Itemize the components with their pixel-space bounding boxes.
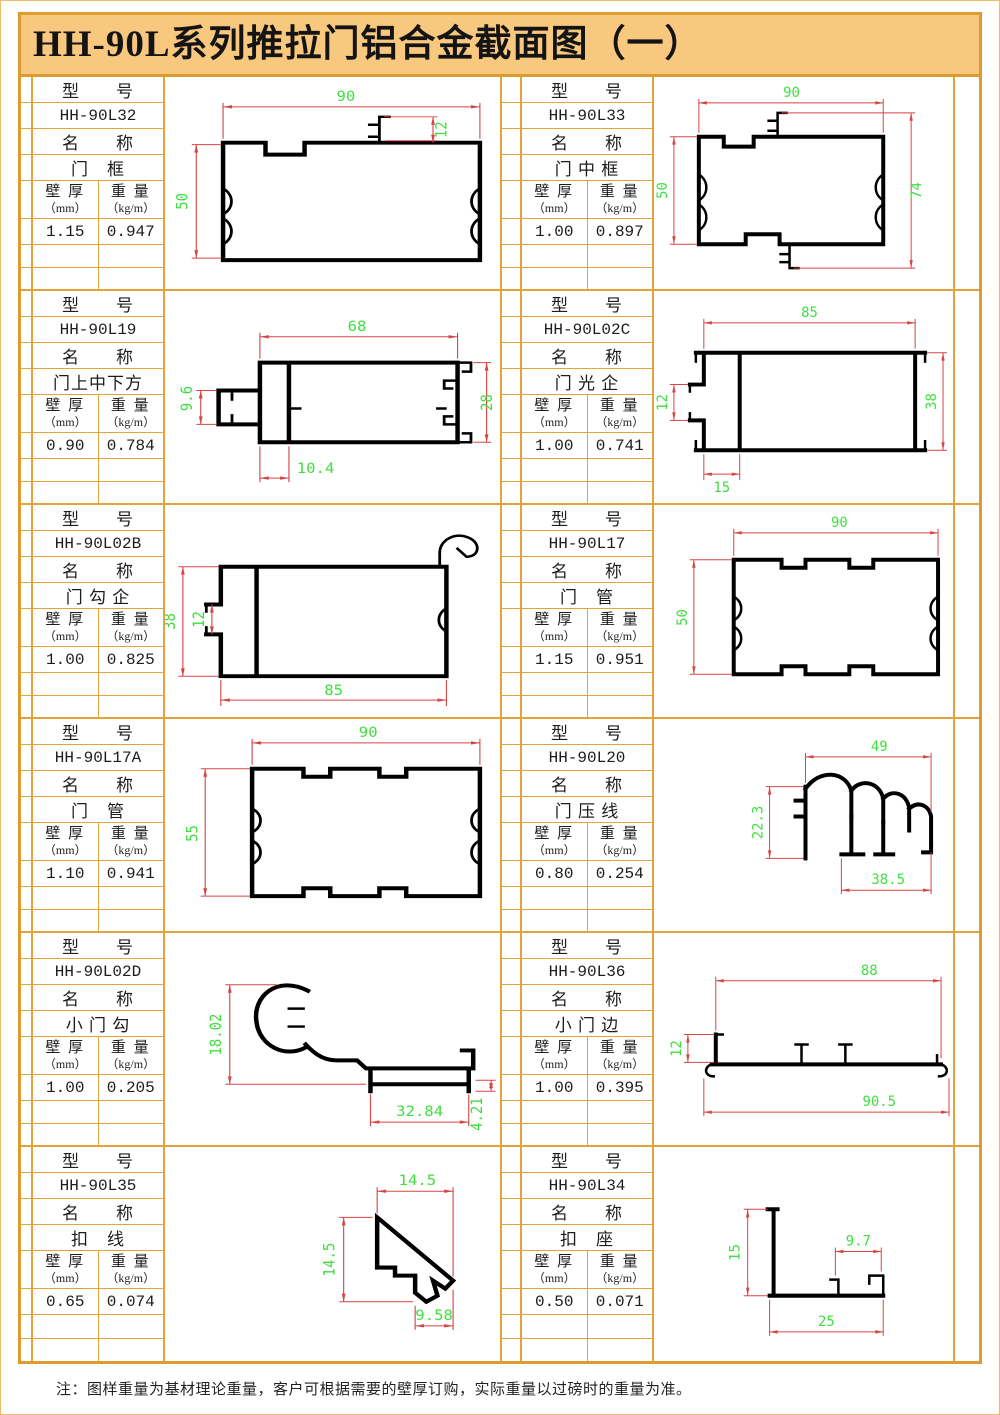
thickness-header: 壁 厚（mm） (522, 1037, 587, 1074)
panel-gutter (21, 719, 33, 931)
panel-gutter (21, 77, 33, 289)
profile-panel: 型 号 HH-90L17A 名 称 门 管 壁 厚（mm） 重 量（kg/m） … (21, 719, 500, 933)
dim-text: 28 (478, 394, 496, 411)
thickness-value: 1.00 (33, 1075, 98, 1100)
thickness-value: 0.80 (522, 861, 587, 886)
spec-header: 壁 厚（mm） 重 量（kg/m） (522, 395, 652, 433)
right-gutter (953, 77, 979, 289)
name-value: 小 门 边 (522, 1011, 652, 1037)
drawing-area: 90 50 74 (654, 77, 953, 289)
profile-drawing: 49 22.3 38.5 (654, 719, 953, 931)
dim-text: 38 (924, 393, 940, 410)
empty-row (33, 1101, 163, 1124)
thickness-header: 壁 厚（mm） (522, 395, 587, 432)
profile-drawing: 18.02 32.84 4.21 (165, 933, 500, 1145)
weight-header: 重 量（kg/m） (98, 609, 164, 646)
dim-text: 68 (348, 319, 367, 335)
model-label: 型 号 (522, 291, 652, 317)
panel-gutter (502, 505, 522, 717)
thickness-value: 1.00 (522, 219, 587, 244)
empty-row (522, 910, 652, 932)
thickness-value: 1.10 (33, 861, 98, 886)
dimensions: 90 12 50 (174, 89, 480, 258)
profile-panel: 型 号 HH-90L35 名 称 扣 线 壁 厚（mm） 重 量（kg/m） 0… (21, 1147, 500, 1361)
dim-text: 50 (655, 182, 671, 199)
profile-outline (699, 113, 883, 268)
spec-values: 1.00 0.205 (33, 1075, 163, 1101)
name-value: 扣 座 (522, 1225, 652, 1251)
profile-drawing: 88 12 90.5 (654, 933, 953, 1145)
dim-text: 88 (861, 963, 878, 979)
empty-row (522, 459, 652, 482)
weight-header: 重 量（kg/m） (98, 1037, 164, 1074)
weight-header: 重 量（kg/m） (587, 395, 653, 432)
dim-text: 90 (831, 515, 848, 531)
dim-text: 25 (818, 1314, 835, 1330)
empty-row (522, 1315, 652, 1339)
name-label: 名 称 (522, 985, 652, 1011)
spec-header: 壁 厚（mm） 重 量（kg/m） (522, 609, 652, 647)
panel-gutter (21, 291, 33, 503)
spec-values: 0.50 0.071 (522, 1289, 652, 1315)
dimensions: 90 50 (675, 515, 938, 674)
profile-drawing: 90 12 50 (165, 77, 500, 289)
empty-row (522, 268, 652, 290)
dim-text: 9.6 (178, 386, 196, 411)
panel-gutter (21, 1147, 33, 1361)
spec-header: 壁 厚（mm） 重 量（kg/m） (33, 181, 163, 219)
thickness-value: 0.50 (522, 1289, 587, 1314)
thickness-header: 壁 厚（mm） (33, 823, 98, 860)
main-frame: HH-90L系列推拉门铝合金截面图（一） 型 号 HH-90L32 名 称 门 … (18, 12, 982, 1364)
weight-header: 重 量（kg/m） (98, 395, 164, 432)
thickness-header: 壁 厚（mm） (33, 395, 98, 432)
dim-text: 85 (801, 305, 818, 321)
name-label: 名 称 (33, 343, 163, 369)
drawing-area: 38 12 85 (165, 505, 500, 717)
thickness-header: 壁 厚（mm） (33, 1251, 98, 1288)
weight-header: 重 量（kg/m） (98, 181, 164, 218)
thickness-header: 壁 厚（mm） (522, 181, 587, 218)
dim-text: 22.3 (751, 806, 767, 840)
profile-panel: 型 号 HH-90L19 名 称 门上中下方 壁 厚（mm） 重 量（kg/m）… (21, 291, 500, 505)
profile-outline (219, 363, 471, 443)
profile-panel: 型 号 HH-90L33 名 称 门 中 框 壁 厚（mm） 重 量（kg/m）… (500, 77, 979, 291)
dim-text: 90 (783, 85, 800, 101)
dim-text: 38 (165, 613, 179, 630)
dimensions: 15 9.7 25 (728, 1209, 883, 1336)
empty-row (33, 1315, 163, 1339)
dimensions: 14.5 14.5 9.58 (320, 1172, 453, 1330)
name-value: 门 中 框 (522, 155, 652, 181)
dim-text: 90.5 (862, 1094, 896, 1110)
right-gutter (953, 1147, 979, 1361)
name-label: 名 称 (522, 129, 652, 155)
panel-gutter (502, 291, 522, 503)
empty-row (522, 482, 652, 504)
profile-drawing: 15 9.7 25 (654, 1147, 953, 1361)
model-value: HH-90L17A (33, 745, 163, 771)
panel-gutter (502, 719, 522, 931)
dim-text: 38.5 (871, 872, 905, 888)
dim-text: 12 (655, 394, 671, 411)
profile-drawing: 38 12 85 (165, 505, 500, 717)
panel-gutter (21, 933, 33, 1145)
name-value: 门 管 (33, 797, 163, 823)
profile-drawing: 68 9.6 28 10.4 (165, 291, 500, 503)
profile-outline (377, 1217, 453, 1301)
model-label: 型 号 (522, 1147, 652, 1173)
weight-value: 0.395 (587, 1075, 653, 1100)
thickness-value: 0.65 (33, 1289, 98, 1314)
footnote: 注：图样重量为基材理论重量，客户可根据需要的壁厚订购，实际重量以过磅时的重量为准… (56, 1378, 982, 1399)
drawing-area: 49 22.3 38.5 (654, 719, 953, 931)
profile-panel: 型 号 HH-90L36 名 称 小 门 边 壁 厚（mm） 重 量（kg/m）… (500, 933, 979, 1147)
right-gutter (953, 505, 979, 717)
thickness-value: 0.90 (33, 433, 98, 458)
dimensions: 88 12 90.5 (669, 963, 949, 1116)
weight-header: 重 量（kg/m） (587, 1037, 653, 1074)
drawing-area: 14.5 14.5 9.58 (165, 1147, 500, 1361)
profile-outline (223, 117, 480, 260)
empty-row (522, 245, 652, 268)
panel-gutter (502, 1147, 522, 1361)
empty-row (33, 268, 163, 290)
weight-header: 重 量（kg/m） (587, 609, 653, 646)
name-label: 名 称 (33, 985, 163, 1011)
name-value: 门 管 (522, 583, 652, 609)
spec-table: 型 号 HH-90L35 名 称 扣 线 壁 厚（mm） 重 量（kg/m） 0… (33, 1147, 165, 1361)
weight-value: 0.784 (98, 433, 164, 458)
model-label: 型 号 (33, 291, 163, 317)
dim-text: 18.02 (207, 1014, 225, 1056)
spec-header: 壁 厚（mm） 重 量（kg/m） (33, 1037, 163, 1075)
model-value: HH-90L20 (522, 745, 652, 771)
dim-text: 32.84 (396, 1104, 443, 1120)
thickness-header: 壁 厚（mm） (522, 1251, 587, 1288)
name-value: 小 门 勾 (33, 1011, 163, 1037)
name-label: 名 称 (33, 557, 163, 583)
model-label: 型 号 (33, 77, 163, 103)
profile-outline (796, 775, 932, 859)
weight-header: 重 量（kg/m） (98, 823, 164, 860)
empty-row (33, 245, 163, 268)
spec-values: 1.00 0.741 (522, 433, 652, 459)
dim-text: 12 (669, 1040, 685, 1057)
profile-panel: 型 号 HH-90L02D 名 称 小 门 勾 壁 厚（mm） 重 量（kg/m… (21, 933, 500, 1147)
spec-header: 壁 厚（mm） 重 量（kg/m） (522, 1037, 652, 1075)
weight-value: 0.951 (587, 647, 653, 672)
empty-row (522, 673, 652, 696)
weight-header: 重 量（kg/m） (587, 823, 653, 860)
weight-value: 0.897 (587, 219, 653, 244)
empty-row (33, 459, 163, 482)
profile-outline (256, 985, 473, 1091)
dim-text: 55 (184, 825, 202, 842)
right-gutter (953, 291, 979, 503)
name-label: 名 称 (522, 557, 652, 583)
profile-drawing: 85 12 38 15 (654, 291, 953, 503)
spec-table: 型 号 HH-90L32 名 称 门 框 壁 厚（mm） 重 量（kg/m） 1… (33, 77, 165, 289)
spec-table: 型 号 HH-90L02D 名 称 小 门 勾 壁 厚（mm） 重 量（kg/m… (33, 933, 165, 1145)
name-label: 名 称 (33, 771, 163, 797)
spec-table: 型 号 HH-90L02C 名 称 门 光 企 壁 厚（mm） 重 量（kg/m… (522, 291, 654, 503)
profile-drawing: 14.5 14.5 9.58 (165, 1147, 500, 1361)
spec-table: 型 号 HH-90L17 名 称 门 管 壁 厚（mm） 重 量（kg/m） 1… (522, 505, 654, 717)
spec-values: 0.80 0.254 (522, 861, 652, 887)
drawing-area: 18.02 32.84 4.21 (165, 933, 500, 1145)
empty-row (33, 910, 163, 932)
model-value: HH-90L34 (522, 1173, 652, 1199)
model-label: 型 号 (33, 1147, 163, 1173)
spec-table: 型 号 HH-90L19 名 称 门上中下方 壁 厚（mm） 重 量（kg/m）… (33, 291, 165, 503)
model-label: 型 号 (522, 77, 652, 103)
dim-text: 90 (336, 89, 355, 105)
name-label: 名 称 (33, 129, 163, 155)
model-label: 型 号 (522, 505, 652, 531)
spec-header: 壁 厚（mm） 重 量（kg/m） (33, 609, 163, 647)
panel-gutter (502, 77, 522, 289)
thickness-header: 壁 厚（mm） (33, 609, 98, 646)
dimensions: 90 55 (184, 725, 480, 896)
profile-drawing: 90 50 (654, 505, 953, 717)
empty-row (33, 482, 163, 504)
empty-row (33, 696, 163, 718)
empty-row (522, 1101, 652, 1124)
model-label: 型 号 (522, 933, 652, 959)
dimensions: 49 22.3 38.5 (751, 739, 931, 894)
profile-outline (252, 769, 480, 896)
dim-text: 15 (728, 1244, 744, 1261)
weight-value: 0.205 (98, 1075, 164, 1100)
model-value: HH-90L33 (522, 103, 652, 129)
spec-table: 型 号 HH-90L36 名 称 小 门 边 壁 厚（mm） 重 量（kg/m）… (522, 933, 654, 1145)
dimensions: 85 12 38 15 (655, 305, 947, 496)
thickness-header: 壁 厚（mm） (522, 823, 587, 860)
profile-grid: 型 号 HH-90L32 名 称 门 框 壁 厚（mm） 重 量（kg/m） 1… (21, 77, 979, 1361)
dim-text: 85 (324, 683, 343, 699)
empty-row (522, 1339, 652, 1362)
spec-header: 壁 厚（mm） 重 量（kg/m） (33, 395, 163, 433)
name-label: 名 称 (522, 343, 652, 369)
empty-row (522, 1124, 652, 1146)
dim-text: 14.5 (320, 1243, 339, 1277)
right-gutter (953, 933, 979, 1145)
dim-text: 9.58 (415, 1307, 453, 1324)
name-value: 门 框 (33, 155, 163, 181)
panel-gutter (502, 933, 522, 1145)
weight-header: 重 量（kg/m） (587, 181, 653, 218)
spec-values: 1.10 0.941 (33, 861, 163, 887)
drawing-area: 90 55 (165, 719, 500, 931)
model-label: 型 号 (33, 505, 163, 531)
profile-outline (206, 536, 477, 677)
thickness-header: 壁 厚（mm） (522, 609, 587, 646)
spec-values: 1.15 0.947 (33, 219, 163, 245)
spec-header: 壁 厚（mm） 重 量（kg/m） (522, 823, 652, 861)
spec-values: 1.15 0.951 (522, 647, 652, 673)
model-value: HH-90L35 (33, 1173, 163, 1199)
weight-value: 0.825 (98, 647, 164, 672)
model-label: 型 号 (33, 719, 163, 745)
name-value: 门上中下方 (33, 369, 163, 395)
drawing-area: 88 12 90.5 (654, 933, 953, 1145)
thickness-value: 1.15 (522, 647, 587, 672)
dim-text: 10.4 (297, 461, 335, 477)
dim-text: 12 (190, 611, 208, 628)
name-value: 门 压 线 (522, 797, 652, 823)
empty-row (522, 696, 652, 718)
model-value: HH-90L36 (522, 959, 652, 985)
profile-panel: 型 号 HH-90L02C 名 称 门 光 企 壁 厚（mm） 重 量（kg/m… (500, 291, 979, 505)
thickness-header: 壁 厚（mm） (33, 1037, 98, 1074)
profile-outline (734, 560, 938, 674)
profile-panel: 型 号 HH-90L02B 名 称 门 勾 企 壁 厚（mm） 重 量（kg/m… (21, 505, 500, 719)
empty-row (522, 887, 652, 910)
model-value: HH-90L02D (33, 959, 163, 985)
spec-table: 型 号 HH-90L17A 名 称 门 管 壁 厚（mm） 重 量（kg/m） … (33, 719, 165, 931)
dimensions: 18.02 32.84 4.21 (207, 985, 495, 1131)
thickness-value: 1.00 (522, 433, 587, 458)
page-title: HH-90L系列推拉门铝合金截面图（一） (21, 15, 979, 77)
spec-table: 型 号 HH-90L33 名 称 门 中 框 壁 厚（mm） 重 量（kg/m）… (522, 77, 654, 289)
weight-value: 0.741 (587, 433, 653, 458)
model-value: HH-90L32 (33, 103, 163, 129)
dim-text: 90 (359, 725, 378, 741)
spec-header: 壁 厚（mm） 重 量（kg/m） (33, 823, 163, 861)
dim-text: 15 (713, 480, 730, 496)
model-label: 型 号 (33, 933, 163, 959)
thickness-value: 1.00 (522, 1075, 587, 1100)
dim-text: 74 (909, 182, 925, 199)
profile-drawing: 90 50 74 (654, 77, 953, 289)
spec-table: 型 号 HH-90L02B 名 称 门 勾 企 壁 厚（mm） 重 量（kg/m… (33, 505, 165, 717)
spec-values: 1.00 0.897 (522, 219, 652, 245)
dimensions: 68 9.6 28 10.4 (178, 319, 496, 483)
dim-text: 50 (675, 609, 691, 626)
spec-header: 壁 厚（mm） 重 量（kg/m） (522, 181, 652, 219)
page: HH-90L系列推拉门铝合金截面图（一） 型 号 HH-90L32 名 称 门 … (0, 0, 1000, 1415)
thickness-header: 壁 厚（mm） (33, 181, 98, 218)
dim-text: 12 (433, 121, 451, 138)
weight-header: 重 量（kg/m） (98, 1251, 164, 1288)
model-value: HH-90L02C (522, 317, 652, 343)
model-value: HH-90L02B (33, 531, 163, 557)
weight-value: 0.254 (587, 861, 653, 886)
spec-values: 0.65 0.074 (33, 1289, 163, 1315)
thickness-value: 1.00 (33, 647, 98, 672)
spec-values: 1.00 0.395 (522, 1075, 652, 1101)
empty-row (33, 887, 163, 910)
weight-value: 0.071 (587, 1289, 653, 1314)
weight-value: 0.947 (98, 219, 164, 244)
thickness-value: 1.15 (33, 219, 98, 244)
spec-header: 壁 厚（mm） 重 量（kg/m） (522, 1251, 652, 1289)
dim-text: 49 (871, 739, 888, 755)
name-label: 名 称 (522, 771, 652, 797)
dim-text: 50 (174, 193, 192, 210)
panel-gutter (21, 505, 33, 717)
model-value: HH-90L17 (522, 531, 652, 557)
profile-drawing: 90 55 (165, 719, 500, 931)
drawing-area: 85 12 38 15 (654, 291, 953, 503)
profile-panel: 型 号 HH-90L20 名 称 门 压 线 壁 厚（mm） 重 量（kg/m）… (500, 719, 979, 933)
profile-panel: 型 号 HH-90L32 名 称 门 框 壁 厚（mm） 重 量（kg/m） 1… (21, 77, 500, 291)
spec-values: 1.00 0.825 (33, 647, 163, 673)
drawing-area: 90 12 50 (165, 77, 500, 289)
profile-outline (706, 1035, 947, 1077)
name-label: 名 称 (522, 1199, 652, 1225)
empty-row (33, 1339, 163, 1362)
dim-text: 9.7 (846, 1233, 871, 1249)
weight-header: 重 量（kg/m） (587, 1251, 653, 1288)
model-label: 型 号 (522, 719, 652, 745)
spec-values: 0.90 0.784 (33, 433, 163, 459)
drawing-area: 68 9.6 28 10.4 (165, 291, 500, 503)
profile-outline (768, 1209, 884, 1295)
drawing-area: 15 9.7 25 (654, 1147, 953, 1361)
weight-value: 0.074 (98, 1289, 164, 1314)
model-value: HH-90L19 (33, 317, 163, 343)
dim-text: 4.21 (468, 1097, 486, 1131)
weight-value: 0.941 (98, 861, 164, 886)
drawing-area: 90 50 (654, 505, 953, 717)
empty-row (33, 673, 163, 696)
right-gutter (953, 719, 979, 931)
empty-row (33, 1124, 163, 1146)
name-value: 门 光 企 (522, 369, 652, 395)
name-value: 门 勾 企 (33, 583, 163, 609)
spec-table: 型 号 HH-90L20 名 称 门 压 线 壁 厚（mm） 重 量（kg/m）… (522, 719, 654, 931)
name-value: 扣 线 (33, 1225, 163, 1251)
dim-text: 14.5 (399, 1172, 437, 1189)
profile-panel: 型 号 HH-90L17 名 称 门 管 壁 厚（mm） 重 量（kg/m） 1… (500, 505, 979, 719)
spec-table: 型 号 HH-90L34 名 称 扣 座 壁 厚（mm） 重 量（kg/m） 0… (522, 1147, 654, 1361)
spec-header: 壁 厚（mm） 重 量（kg/m） (33, 1251, 163, 1289)
profile-outline (690, 353, 925, 451)
name-label: 名 称 (33, 1199, 163, 1225)
profile-panel: 型 号 HH-90L34 名 称 扣 座 壁 厚（mm） 重 量（kg/m） 0… (500, 1147, 979, 1361)
